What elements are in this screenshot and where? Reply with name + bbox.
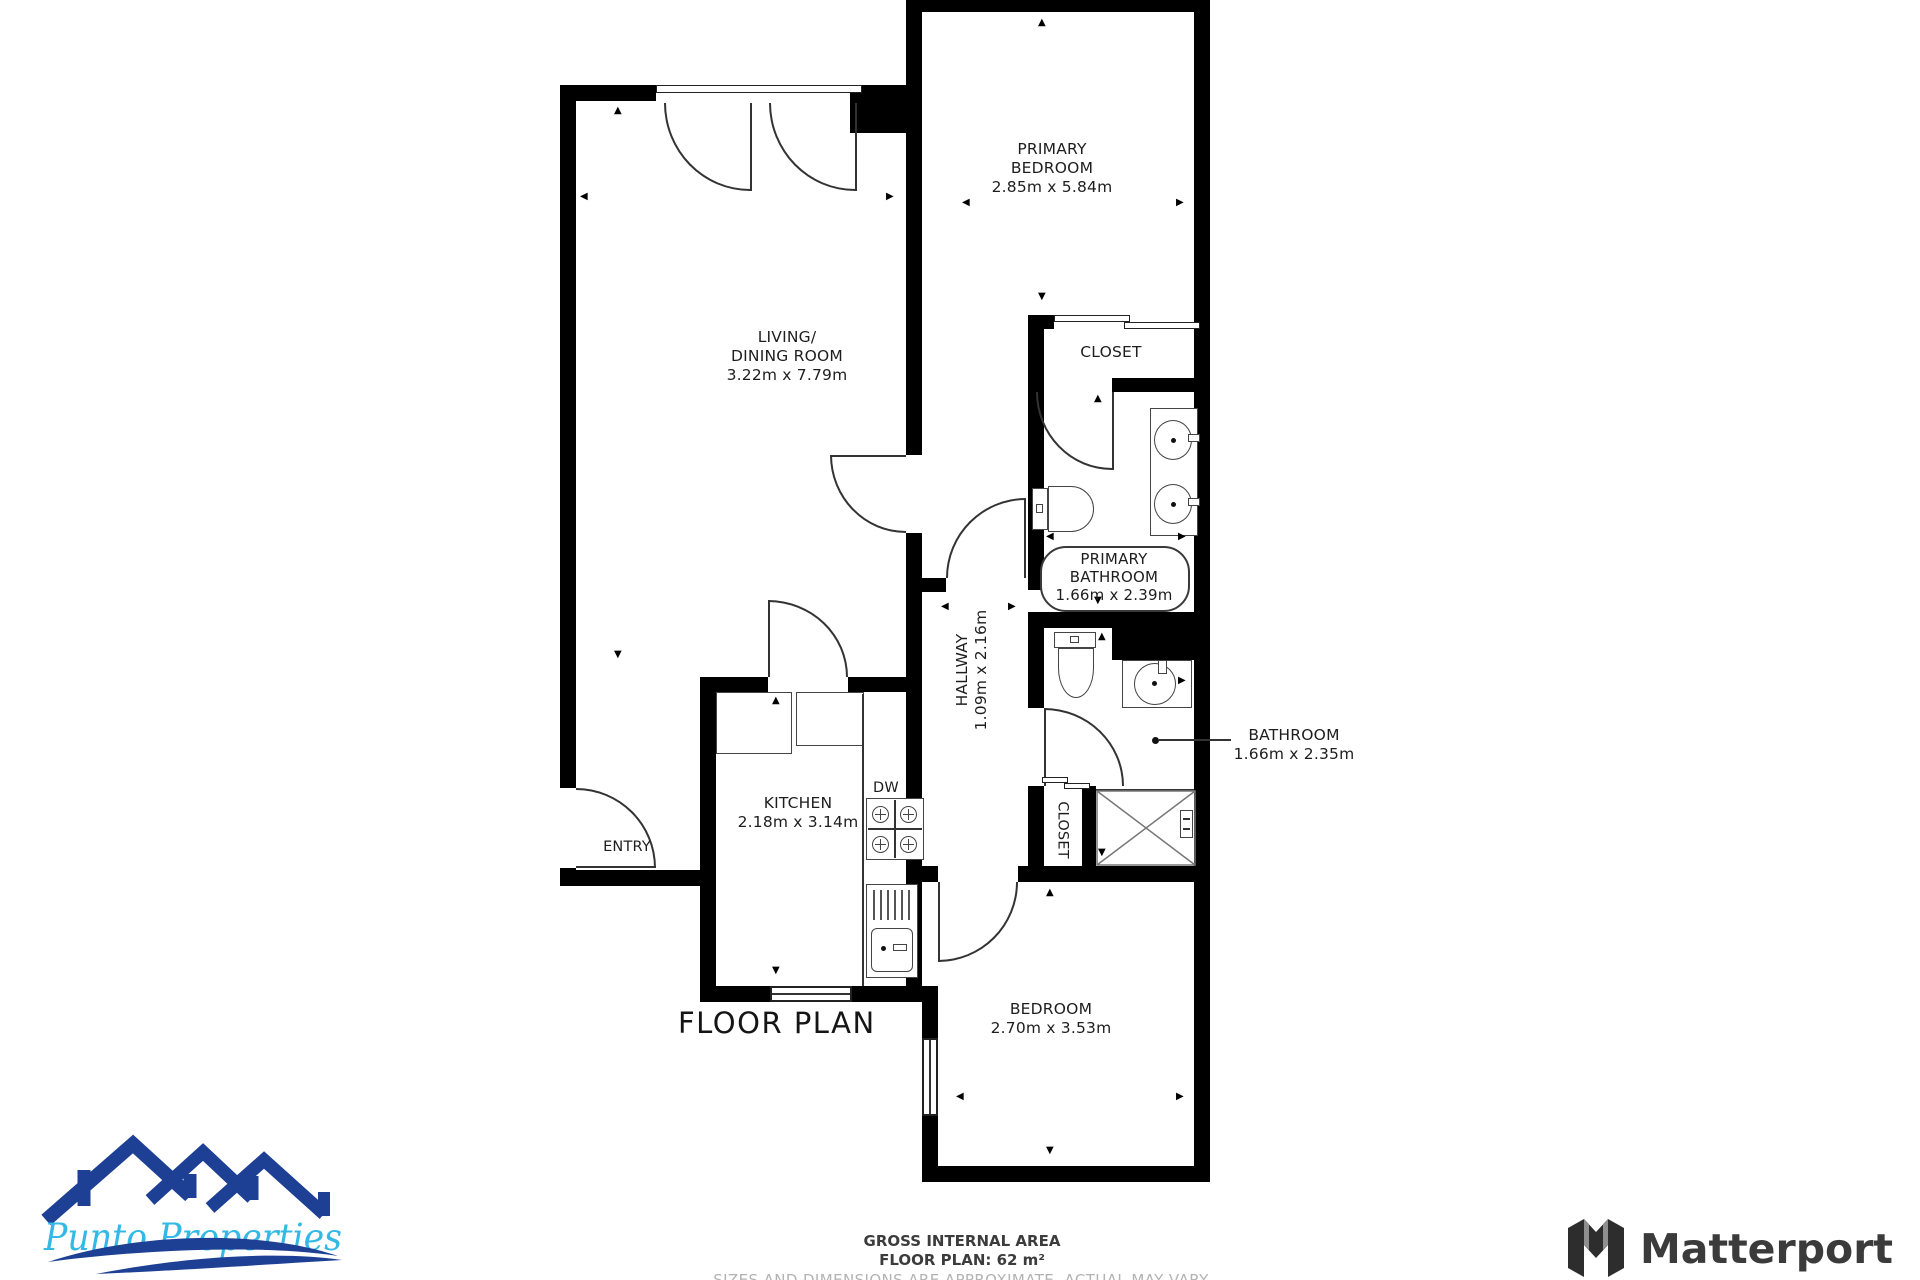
wall-segment	[922, 1116, 938, 1166]
dimension-arrow-icon: ▼	[1098, 848, 1106, 858]
wall-segment	[922, 986, 938, 1038]
dimension-arrow-icon: ▲	[1046, 888, 1054, 898]
plan-title: FLOOR PLAN	[678, 1006, 876, 1040]
room-name: PRIMARY	[992, 140, 1113, 159]
room-dimensions: 2.85m x 5.84m	[992, 178, 1113, 197]
toilet-bowl	[1048, 486, 1094, 532]
room-name: LIVING/	[727, 328, 848, 347]
kitchen-appliance	[796, 692, 864, 746]
sliding-door	[1124, 322, 1200, 329]
roof-icon	[46, 1144, 324, 1220]
room-name: HALLWAY	[953, 610, 972, 731]
room-name: DINING ROOM	[727, 347, 848, 366]
dimension-arrow-icon: ▲	[1038, 18, 1046, 28]
dimension-arrow-icon: ▼	[614, 650, 622, 660]
wall-segment	[906, 578, 946, 592]
toilet-flush-button	[1036, 504, 1043, 513]
dimension-arrow-icon: ◀	[962, 198, 970, 208]
wall-segment	[560, 870, 716, 886]
door-swing-arc	[768, 600, 848, 677]
room-label-primary-bathroom: PRIMARY BATHROOM 1.66m x 2.39m	[1055, 550, 1172, 604]
french-door-sill	[656, 85, 862, 93]
matterport-icon	[1568, 1219, 1624, 1277]
stove-burner-icon	[872, 836, 889, 853]
kitchen-appliance	[716, 692, 792, 754]
stove-burner-icon	[900, 836, 917, 853]
door-swing-arc	[1044, 708, 1124, 786]
drain-dot	[1171, 438, 1176, 443]
room-dimensions: 2.18m x 3.14m	[738, 813, 859, 832]
door-leaf	[855, 103, 857, 191]
room-dimensions: 1.09m x 2.16m	[972, 610, 991, 731]
door-swing-arc	[938, 882, 1018, 962]
room-name: BEDROOM	[992, 159, 1113, 178]
room-name: BEDROOM	[991, 1000, 1112, 1019]
wall-segment	[1112, 628, 1194, 660]
wall-segment	[852, 986, 922, 1002]
door-swing-arc	[769, 103, 855, 191]
room-label-primary-bedroom: PRIMARY BEDROOM 2.85m x 5.84m	[992, 140, 1113, 197]
plan-footer: GROSS INTERNAL AREA FLOOR PLAN: 62 m² SI…	[713, 1232, 1211, 1280]
kitchen-counter-line	[862, 694, 864, 986]
dimension-arrow-icon: ▶	[906, 774, 914, 784]
room-name: BATHROOM	[1055, 568, 1172, 586]
stove-burner-icon	[872, 806, 889, 823]
room-label-closet-lower: CLOSET	[1053, 801, 1072, 859]
stove-burner-icon	[900, 806, 917, 823]
dishwasher-label: DW	[873, 779, 899, 798]
room-label-closet-upper: CLOSET	[1080, 343, 1141, 362]
toilet-bowl	[1058, 648, 1094, 698]
dimension-arrow-icon: ◀	[1032, 676, 1040, 686]
wall-segment	[1028, 378, 1038, 392]
dimension-arrow-icon: ▼	[772, 966, 780, 976]
room-label-bedroom: BEDROOM 2.70m x 3.53m	[991, 1000, 1112, 1038]
shower-valve-line	[1183, 818, 1190, 820]
room-label-living: LIVING/ DINING ROOM 3.22m x 7.79m	[727, 328, 848, 385]
door-swing-arc	[664, 103, 750, 191]
floor-plan-page: ◀ ▶ ▲ ▼ ◀ ▶ ▲ ▼ ◀ ▶ ▲ ▼ ◀ ▶ ◀ ▶ ▲ ▼ ◀ ▶ …	[0, 0, 1920, 1280]
wall-segment	[848, 677, 922, 692]
room-dimensions: 1.66m x 2.35m	[1234, 745, 1355, 764]
dimension-arrow-icon: ▲	[1098, 632, 1106, 642]
wall-segment	[1018, 866, 1210, 882]
room-name: ENTRY	[603, 838, 651, 857]
room-name: BATHROOM	[1234, 726, 1355, 745]
faucet	[1188, 434, 1200, 442]
room-label-kitchen: KITCHEN 2.18m x 3.14m	[738, 794, 859, 832]
room-name: CLOSET	[1053, 801, 1072, 859]
door-leaf	[1112, 392, 1114, 470]
drainboard-line	[908, 890, 910, 920]
wall-segment	[1112, 378, 1210, 392]
wall-segment	[560, 85, 656, 101]
wall-segment	[1028, 612, 1210, 628]
leader-line	[1159, 739, 1231, 741]
dimension-arrow-icon: ▼	[1038, 292, 1046, 302]
room-dimensions: 3.22m x 7.79m	[727, 366, 848, 385]
leader-dot	[1152, 737, 1159, 744]
dimension-arrow-icon: ◀	[704, 774, 712, 784]
faucet	[1188, 498, 1200, 506]
matterport-logo: Matterport	[1566, 1216, 1914, 1280]
toilet-flush-button	[1070, 636, 1079, 643]
wall-segment	[922, 1166, 1210, 1182]
faucet-dot	[881, 946, 886, 951]
drainboard-line	[901, 890, 903, 920]
wall-segment	[700, 677, 768, 692]
window-mullion	[929, 1040, 931, 1114]
dimension-arrow-icon: ▶	[1178, 676, 1186, 686]
shower-valve-line	[1183, 828, 1190, 830]
stove-grid-line	[894, 800, 896, 858]
dimension-arrow-icon: ◀	[580, 192, 588, 202]
drainboard-line	[880, 890, 882, 920]
dimension-arrow-icon: ◀	[1046, 532, 1054, 542]
room-label-bathroom: BATHROOM 1.66m x 2.35m	[1234, 726, 1355, 764]
door-swing-arc	[830, 455, 906, 533]
dimension-arrow-icon: ◀	[941, 602, 949, 612]
sliding-door	[1064, 783, 1090, 789]
faucet	[1158, 660, 1167, 674]
dimension-arrow-icon: ◀	[956, 1092, 964, 1102]
room-name: KITCHEN	[738, 794, 859, 813]
window-mullion	[772, 993, 850, 995]
sliding-door	[1054, 315, 1130, 322]
room-dimensions: 2.70m x 3.53m	[991, 1019, 1112, 1038]
faucet-lever	[893, 944, 907, 951]
room-dimensions: 1.66m x 2.39m	[1055, 586, 1172, 604]
room-name: CLOSET	[1080, 343, 1141, 362]
dimension-arrow-icon: ▶	[1176, 1092, 1184, 1102]
wall-segment	[560, 85, 576, 788]
door-swing-arc	[946, 498, 1026, 578]
drain-dot	[1152, 681, 1157, 686]
wall-segment	[700, 986, 770, 1002]
wall-segment	[906, 85, 922, 455]
dimension-arrow-icon: ▶	[1176, 198, 1184, 208]
wall-segment	[700, 677, 716, 1002]
drainboard-line	[873, 890, 875, 920]
door-leaf	[750, 103, 752, 191]
drainboard-line	[894, 890, 896, 920]
drain-dot	[1171, 502, 1176, 507]
dimension-arrow-icon: ▶	[1008, 602, 1016, 612]
dimension-arrow-icon: ▼	[1046, 1146, 1054, 1156]
wall-segment	[922, 0, 1210, 12]
wall-segment	[1194, 0, 1210, 1182]
dimension-arrow-icon: ▶	[1178, 532, 1186, 542]
dimension-arrow-icon: ▲	[772, 696, 780, 706]
room-label-entry: ENTRY	[603, 838, 651, 857]
drainboard-line	[887, 890, 889, 920]
agency-logo: Punto Properties	[38, 1116, 350, 1280]
floor-plan-area-value: FLOOR PLAN: 62 m²	[713, 1251, 1211, 1270]
wall-segment	[1028, 628, 1044, 708]
gross-internal-area-label: GROSS INTERNAL AREA	[713, 1232, 1211, 1251]
matterport-name-text: Matterport	[1640, 1225, 1893, 1273]
dimension-arrow-icon: ▲	[614, 106, 622, 116]
appliance-name: DW	[873, 779, 899, 798]
room-name: PRIMARY	[1055, 550, 1172, 568]
room-label-hallway: HALLWAY 1.09m x 2.16m	[953, 610, 991, 731]
dimension-arrow-icon: ▲	[1094, 394, 1102, 404]
shower-valve	[1180, 810, 1193, 838]
dimension-arrow-icon: ▶	[886, 192, 894, 202]
disclaimer-text: SIZES AND DIMENSIONS ARE APPROXIMATE, AC…	[713, 1271, 1211, 1280]
wall-segment	[922, 866, 938, 882]
